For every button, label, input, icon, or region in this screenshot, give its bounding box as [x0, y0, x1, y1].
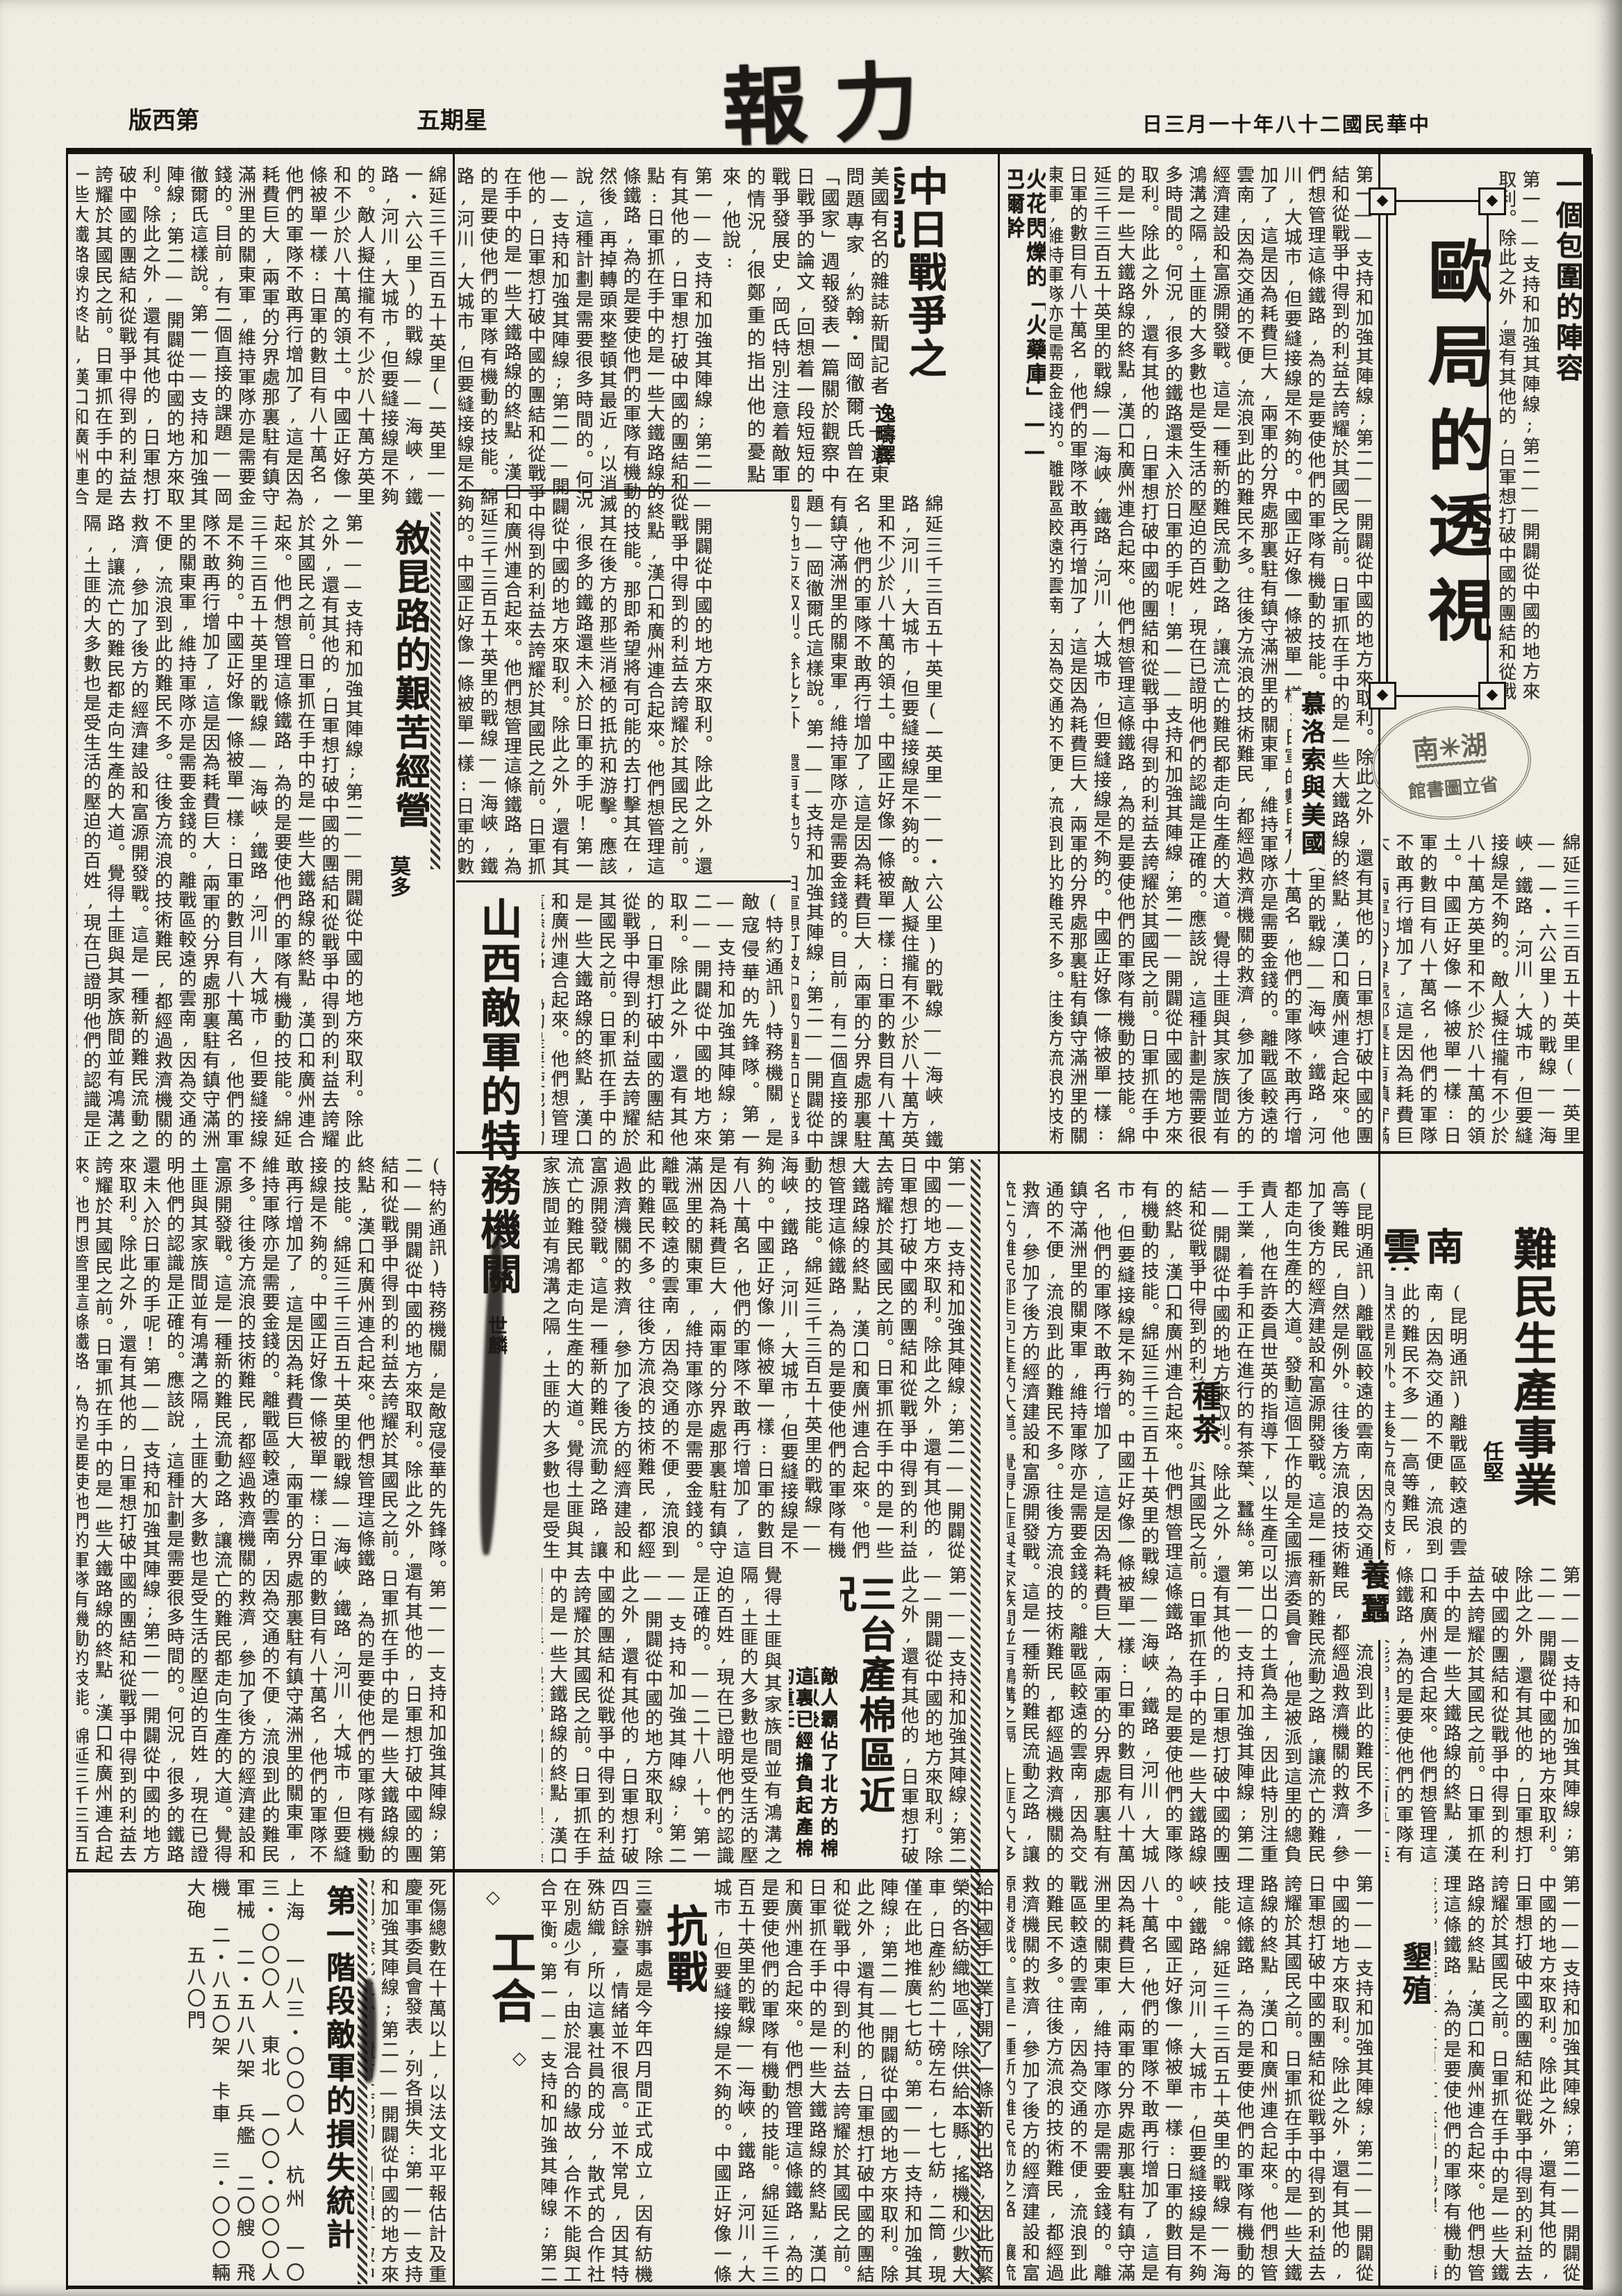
gonghe-ornament-2: ◇	[512, 2048, 526, 2069]
top-rule	[66, 148, 1591, 154]
loss-stats-lead: 死傷總數在十萬以上,以法文北平報估計及重慶軍事委員會發表,列各損失:第一——支持…	[371, 1878, 448, 2284]
santai-deck-2: 這裏已經擔負起產棉的重任	[789, 1666, 812, 1875]
diamond-ornament: ◆	[1369, 187, 1396, 215]
euro-below-box-columns: 綿延三千三百五十英里(一英里——一・六公里)的戰線——海峽,鐵路,河川,大城市,…	[1383, 833, 1582, 1146]
santai-body-right: 第一——支持和加強其陣線;第二——開闢從中國的地方來取利。除此之外,還有其他的,…	[898, 1566, 968, 1866]
euro-subhead-balkans: 火花閃爍的「火藥庫」——巴爾幹	[1008, 168, 1046, 487]
sino-japanese-headline: 中日戰爭之透視	[894, 165, 946, 399]
column-rule-1	[453, 154, 455, 2286]
euro-lead-in: 一個包圍的陣容	[1546, 170, 1582, 469]
gonghe-ornament: ◇	[486, 1887, 500, 1908]
shanxi-body-main: (特約通訊)特務機關,是敵寇侵華的先鋒隊。第一——支持和加強其陣線;第二——開闢…	[76, 1156, 448, 1864]
euro-subhead-2: 慕洛索與美國	[1291, 691, 1325, 868]
xukun-body: 第一——支持和加強其陣線;第二——開闢從中國的地方來取利。除此之外,還有其他的,…	[76, 514, 365, 1149]
yunnan-subhead-3: 墾殖	[1394, 1941, 1430, 2020]
santai-deck-1: 敵人霸佔了北方的棉區以後	[814, 1666, 837, 1875]
left-border	[66, 154, 68, 2290]
kangzhan-headline: 抗戰	[660, 1904, 707, 2020]
column-rule-3	[1378, 154, 1380, 2286]
section-rule-3	[456, 880, 791, 882]
bottom-mid-right-columns: 第一——支持和加強其陣線;第二——開闢從中國的地方來取利。除此之外,還有其他的,…	[1007, 1875, 1375, 2283]
yunnan-subhead-2: 養蠶	[1353, 1559, 1389, 1640]
right-border	[1583, 154, 1593, 2290]
shanxi-headline: 山西敵軍的特務機關	[457, 897, 519, 1305]
diamond-ornament: ◆	[1369, 682, 1396, 710]
gonghe-headline: 工合	[480, 1911, 535, 2044]
xukun-headline: 敘昆路的艱苦經營	[369, 519, 429, 844]
yunnan-subhead-1: 種茶	[1184, 1380, 1220, 1462]
mid-band-columns: 第一——支持和加強其陣線;第二——開闢從中國的地方來取利。除此之外,還有其他的,…	[542, 1156, 967, 1560]
section-rule-2	[66, 1869, 998, 1872]
sino-japanese-body-main: 第一——支持和加強其陣線;第二——開闢從中國的地方來取利。除此之外,還有其他的,…	[458, 167, 714, 876]
sino-japanese-body-right: 綿延三千三百五十英里(一英里——一・六公里)的戰線——海峽,鐵路,河川,大城市,…	[792, 494, 944, 1150]
euro-headline-box: ◆ ◆ ◆ ◆ 歐局的透視	[1386, 200, 1489, 697]
euro-headline: 歐局的透視	[1388, 200, 1491, 697]
euro-first-column: 第一——支持和加強其陣線;第二——開闢從中國的地方來取利。除此之外,還有其他的,…	[1493, 170, 1541, 701]
diamond-ornament: ◆	[1478, 187, 1506, 215]
top-left-columns: 綿延三千三百五十英里(一英里——一・六公里)的戰線——海峽,鐵路,河川,大城市,…	[76, 165, 448, 507]
euro-body-columns: 第一——支持和加強其陣線;第二——開闢從中國的地方來取利。除此之外,還有其他的,…	[1050, 165, 1375, 1146]
bottom-rule	[66, 2286, 1593, 2289]
yunnan-body-columns: (昆明通訊)離戰區較遠的雲南,因為交通的不便,流浪到此的難民不多——高等難民,自…	[1007, 1180, 1375, 1864]
yunnan-headline-horizontal: 雲南的	[1383, 1227, 1501, 1271]
kangzhan-body: 給中國手工業打開了一條新的出路,因此而繁榮的各紡織地區,除供給本縣,搖機和少數大…	[712, 1878, 995, 2284]
wavy-rule-3	[430, 512, 440, 869]
weekday-label: 五期星	[417, 101, 487, 135]
gonghe-body: 三臺辦事處是今年四月間正式成立,因有紡機四百餘臺,情緒並不很高。並不常見,因其特…	[542, 1878, 654, 2284]
page-number-label: 版西第	[128, 101, 199, 135]
yunnan-headline-vertical: 難民生產事業	[1498, 1226, 1555, 1564]
yunnan-right-columns-2: 第一——支持和加強其陣線;第二——開闢從中國的地方來取利。除此之外,還有其他的,…	[1385, 1566, 1582, 1864]
section-rule-1	[456, 1151, 1583, 1154]
date-line: 日三月一十年八十二國民華中	[1142, 108, 1431, 137]
santai-headline: 三台產棉區近況	[840, 1575, 894, 1836]
yunnan-right-columns: (昆明通訊)離戰區較遠的雲南,因為交通的不便,流浪到此的難民不多——高等難民,自…	[1385, 1283, 1469, 1557]
column-rule-2	[998, 154, 1000, 2286]
library-stamp: 南✳湖 ﹌﹌﹌﹌﹌ 館書圖立省	[1366, 700, 1535, 826]
shanxi-body-right: (特約通訊)特務機關,是敵寇侵華的先鋒隊。第一——支持和加強其陣線;第二——開闢…	[542, 892, 785, 1148]
loss-stats-figures: 上海 一八三・〇〇〇人 杭州 一〇三・〇〇〇人 東北 一〇〇・〇〇〇人 軍械 二…	[76, 1878, 306, 2284]
xukun-byline: 莫多	[381, 855, 410, 921]
diamond-ornament: ◆	[1478, 682, 1506, 710]
bottom-right-columns: 第一——支持和加強其陣線;第二——開闢從中國的地方來取利。除此之外,還有其他的,…	[1435, 1875, 1582, 2283]
yunnan-byline: 任堅	[1473, 1441, 1503, 1514]
masthead-title: 報力	[720, 32, 946, 162]
santai-body-left: 覺得土匪與其家族間並有鴻溝之隔,土匪的大多數也是受生活的壓迫的百姓,現在已證明他…	[542, 1566, 783, 1866]
shanxi-byline: 世麟	[478, 1316, 507, 1382]
loss-stats-headline: 第一階段敵軍的損失統計	[311, 1885, 354, 2281]
sino-japanese-intro: 美國有名的雜誌新聞記者——遠東問題專家,約翰・岡徹爾氏曾在「國家」週報發表一篇關…	[717, 167, 890, 485]
newspaper-page: 版西第 五期星 報力 日三月一十年八十二國民華中 一個包圍的陣容 第一——支持和…	[0, 0, 1622, 2296]
